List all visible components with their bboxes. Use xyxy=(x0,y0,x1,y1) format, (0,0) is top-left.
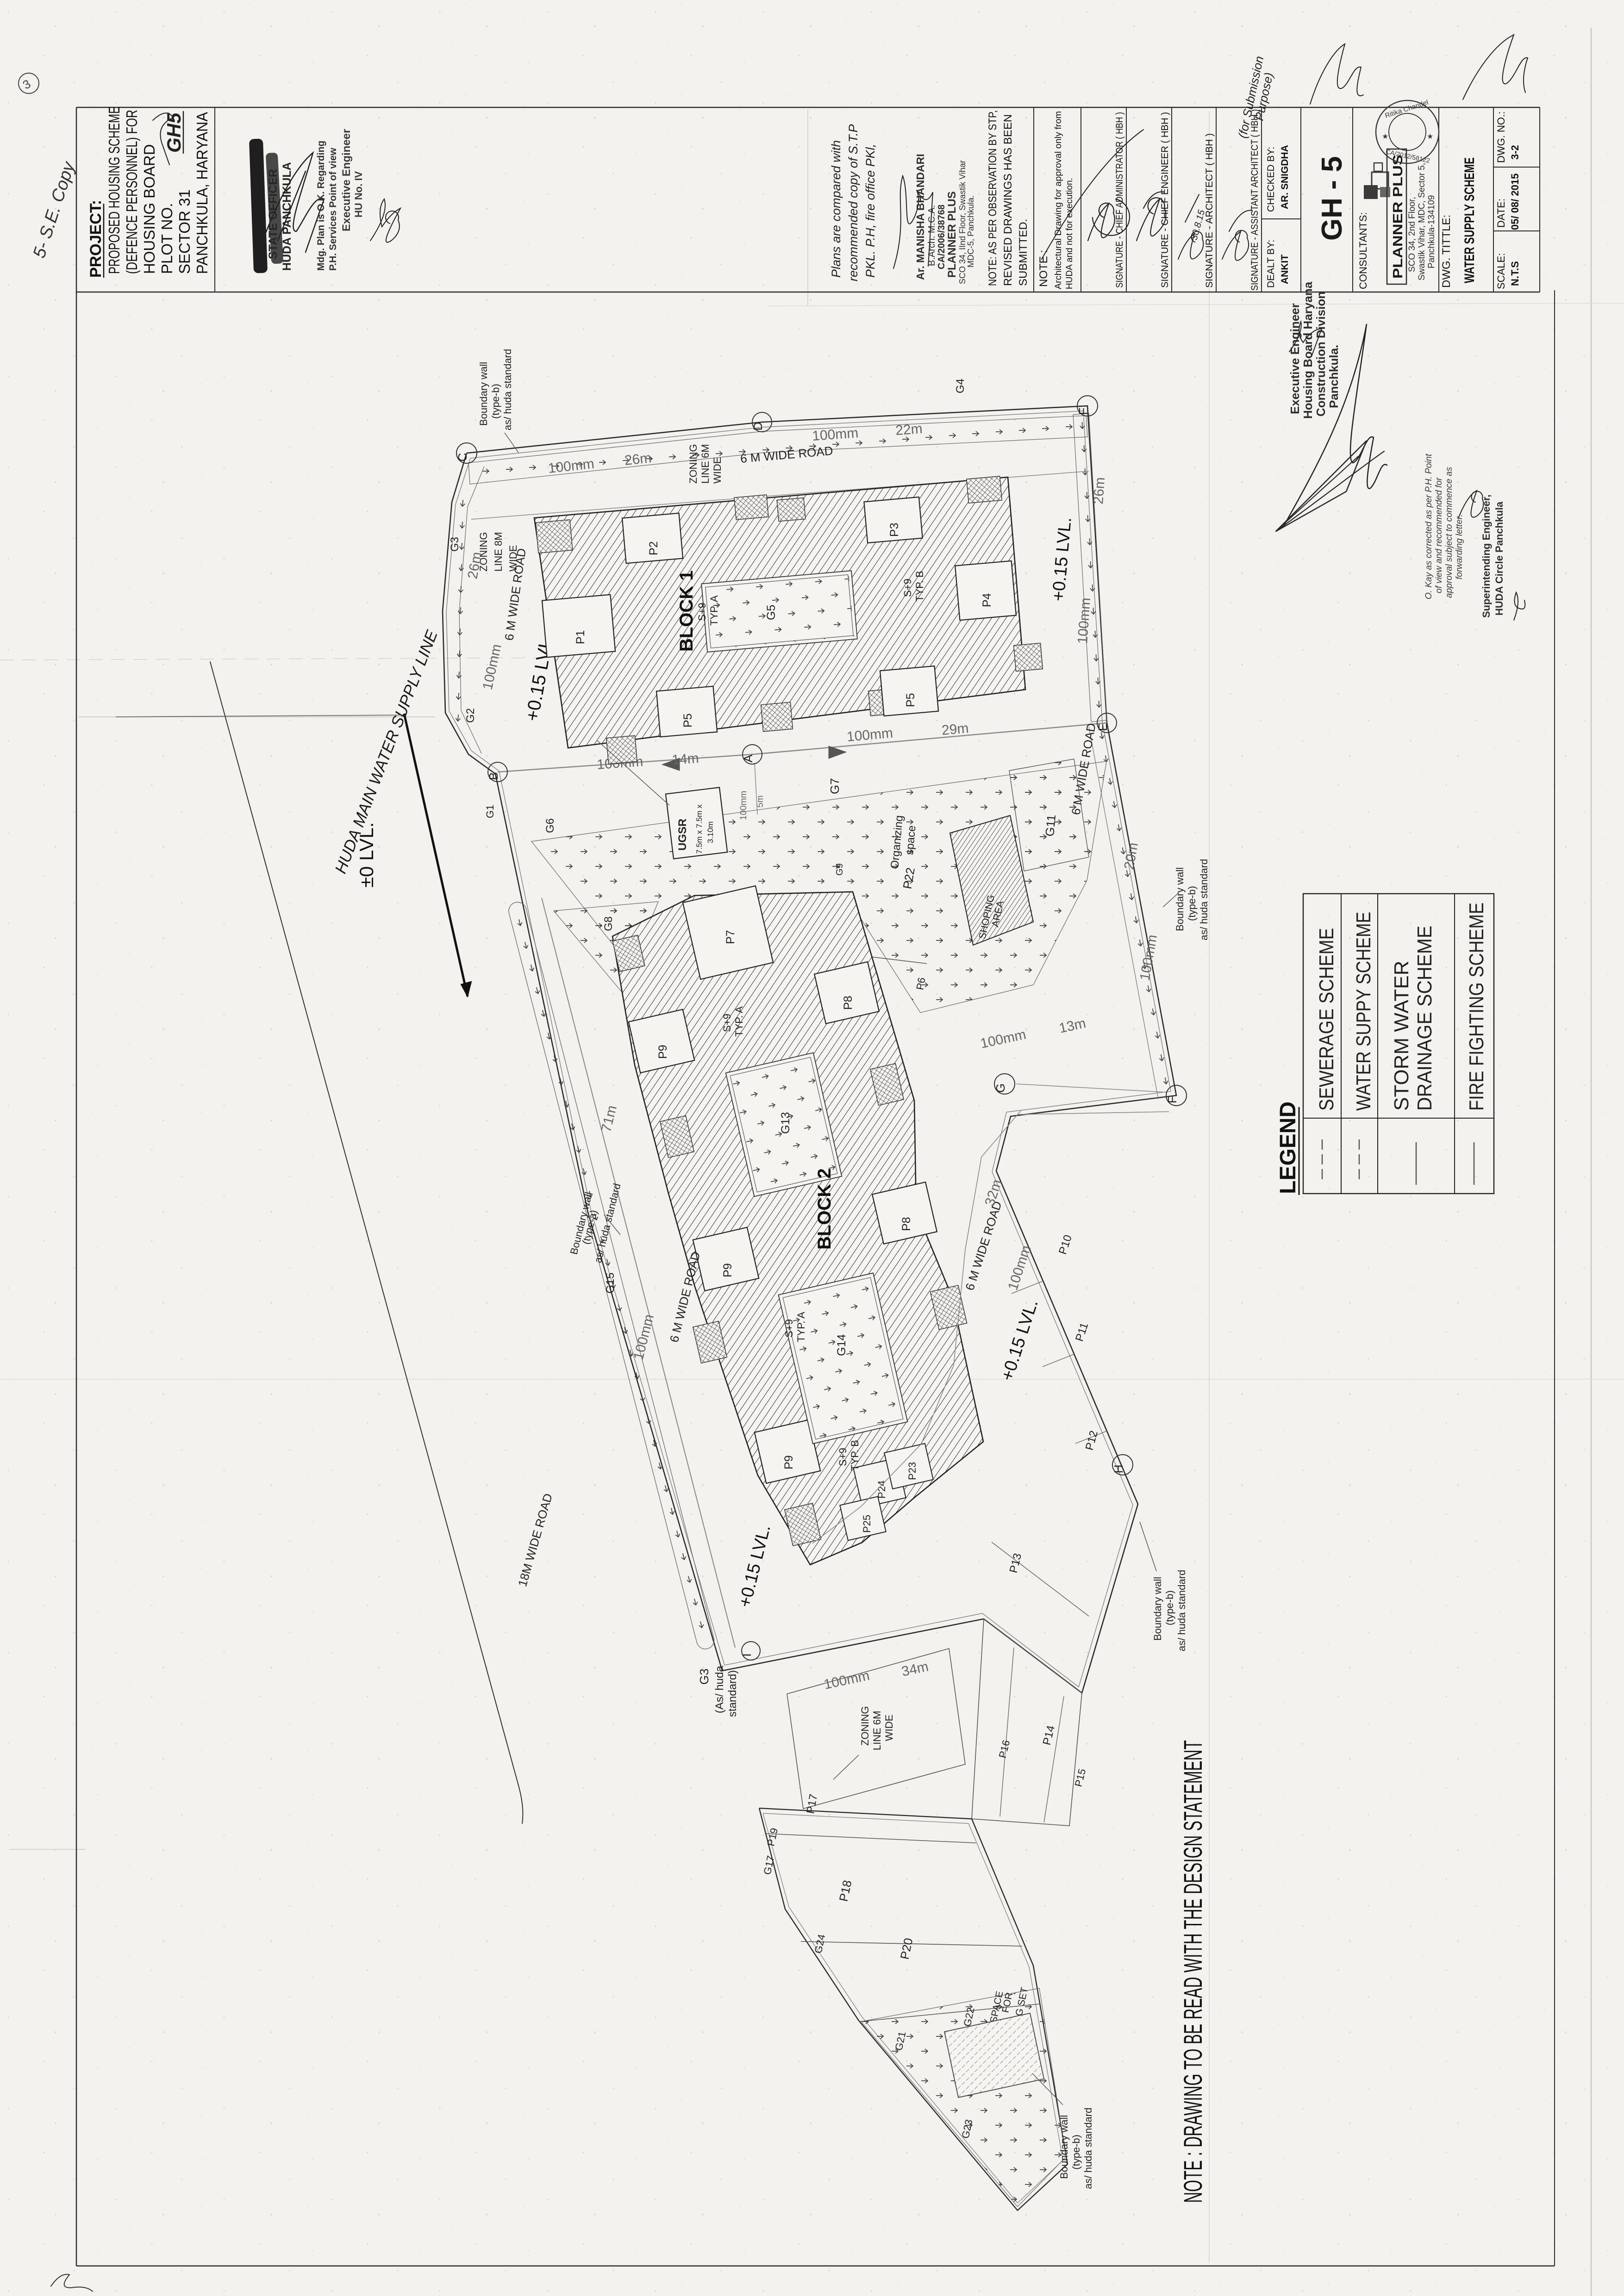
svg-text:S+9: S+9 xyxy=(696,603,708,621)
svg-text:LINE 6M: LINE 6M xyxy=(871,1711,883,1750)
svg-text:LINE 8M: LINE 8M xyxy=(493,532,504,572)
svg-text:P8: P8 xyxy=(842,996,855,1010)
svg-text:PKL. P.H, fire office PKl,: PKL. P.H, fire office PKl, xyxy=(863,144,877,278)
svg-text:CHECKED BY:: CHECKED BY: xyxy=(1266,147,1276,212)
svg-text:forwarding letter.: forwarding letter. xyxy=(1455,514,1464,579)
svg-text:F': F' xyxy=(1076,405,1090,415)
svg-text:(DEFENCE PERSONNEL) FOR: (DEFENCE PERSONNEL) FOR xyxy=(123,110,140,274)
svg-text:P1: P1 xyxy=(574,630,587,644)
svg-text:22m: 22m xyxy=(895,421,923,438)
svg-text:standard): standard) xyxy=(726,1670,739,1717)
svg-text:approval subject to commence a: approval subject to commence as xyxy=(1444,467,1454,598)
svg-text:P9: P9 xyxy=(721,1263,734,1277)
svg-text:Boundary wall: Boundary wall xyxy=(1058,2115,1070,2179)
svg-text:P25: P25 xyxy=(861,1515,873,1533)
svg-text:ZONING: ZONING xyxy=(478,532,489,572)
svg-text:D: D xyxy=(751,422,765,431)
svg-text:DRAINAGE SCHEME: DRAINAGE SCHEME xyxy=(1413,926,1436,1111)
svg-text:P.H. Services Point of view: P.H. Services Point of view xyxy=(328,148,338,271)
svg-text:G4: G4 xyxy=(954,379,967,393)
svg-text:ZONING: ZONING xyxy=(687,444,699,484)
svg-text:G2: G2 xyxy=(464,708,477,723)
svg-text:NOTE : DRAWING TO BE READ WITH: NOTE : DRAWING TO BE READ WITH THE DESIG… xyxy=(1178,1740,1207,2203)
svg-text:ANKIT: ANKIT xyxy=(1280,255,1290,284)
svg-text:★: ★ xyxy=(1427,133,1433,141)
svg-text:Executive Engineer: Executive Engineer xyxy=(1288,303,1302,414)
svg-text:N.T.S: N.T.S xyxy=(1509,261,1521,286)
svg-text:Superintending Engineer,: Superintending Engineer, xyxy=(1480,495,1492,618)
svg-text:E: E xyxy=(1096,723,1110,731)
svg-text:REVISED DRAWINGS HAS BEEN: REVISED DRAWINGS HAS BEEN xyxy=(1002,114,1014,286)
svg-text:G7: G7 xyxy=(828,778,842,794)
svg-text:Mdg. Plan is O.K. Regarding: Mdg. Plan is O.K. Regarding xyxy=(316,141,326,271)
svg-text:(type-b): (type-b) xyxy=(490,384,501,419)
svg-text:(type-b): (type-b) xyxy=(1070,2134,1082,2170)
svg-text:LINE 6M: LINE 6M xyxy=(700,444,711,484)
svg-text:SUBMITTED.: SUBMITTED. xyxy=(1017,219,1030,286)
svg-text:of view and recommended for: of view and recommended for xyxy=(1434,477,1444,593)
svg-text:G15: G15 xyxy=(604,1273,617,1294)
svg-text:G6: G6 xyxy=(544,818,556,833)
svg-text:TYP. A: TYP. A xyxy=(733,1006,745,1037)
svg-text:CA/2006/38768: CA/2006/38768 xyxy=(937,205,947,269)
svg-text:GH5: GH5 xyxy=(163,112,185,153)
svg-text:AR. SNIGDHA: AR. SNIGDHA xyxy=(1280,145,1290,209)
svg-text:O. Kay as corrected as per P.H: O. Kay as corrected as per P.H. Point xyxy=(1424,454,1434,599)
svg-text:HUDA Circle Panchkula: HUDA Circle Panchkula xyxy=(1493,501,1505,616)
svg-text:(type-b): (type-b) xyxy=(1164,1590,1175,1625)
svg-text:SIGNATURE - ASSISTANT ARCHITEC: SIGNATURE - ASSISTANT ARCHITECT ( HBH ) xyxy=(1249,109,1260,291)
svg-text:S+9: S+9 xyxy=(837,1448,849,1466)
svg-text:PLOT NO.: PLOT NO. xyxy=(158,203,175,274)
svg-text:TYP. B: TYP. B xyxy=(914,571,925,602)
svg-text:DWG. TITTLE:: DWG. TITTLE: xyxy=(1440,215,1453,288)
svg-text:Construction Division: Construction Division xyxy=(1314,292,1328,417)
svg-text:DWG. NO.:: DWG. NO.: xyxy=(1495,112,1507,163)
svg-text:★: ★ xyxy=(1382,133,1388,141)
svg-text:MDC-5, Panchkula.: MDC-5, Panchkula. xyxy=(966,195,975,268)
svg-text:14m: 14m xyxy=(671,751,700,768)
svg-text:as/ huda standard: as/ huda standard xyxy=(1176,1570,1187,1651)
svg-text:recommended copy of S.T.P: recommended copy of S.T.P xyxy=(846,124,860,281)
svg-text:Swastik Vihar, MDC, Sector 5,: Swastik Vihar, MDC, Sector 5, xyxy=(1417,163,1427,280)
svg-text:C: C xyxy=(456,453,469,462)
svg-text:G1: G1 xyxy=(484,805,496,818)
svg-text:LEGEND: LEGEND xyxy=(1276,1101,1300,1194)
svg-text:SIGNATURE - CHIEF ENGINEER ( H: SIGNATURE - CHIEF ENGINEER ( HBH ) xyxy=(1160,112,1170,288)
svg-text:S+9: S+9 xyxy=(902,579,913,597)
svg-text:PROJECT:: PROJECT: xyxy=(87,200,105,278)
svg-text:UGSR: UGSR xyxy=(676,819,689,851)
svg-text:BLOCK 2: BLOCK 2 xyxy=(814,1168,835,1250)
svg-text:PLANNER PLUS: PLANNER PLUS xyxy=(1391,155,1405,279)
svg-text:SIGNATURE - ARCHITECT ( HBH ): SIGNATURE - ARCHITECT ( HBH ) xyxy=(1204,133,1215,288)
svg-text:P6: P6 xyxy=(914,977,927,991)
svg-text:P8: P8 xyxy=(900,1217,913,1231)
svg-text:B: B xyxy=(487,772,500,780)
svg-text:FIRE FIGHTING SCHEME: FIRE FIGHTING SCHEME xyxy=(1465,902,1488,1111)
svg-text:NOTE: AS PER OBSERVATION BY ST: NOTE: AS PER OBSERVATION BY STP, xyxy=(987,110,999,286)
svg-text:TYP. A: TYP. A xyxy=(795,1312,807,1342)
svg-text:Plans are compared with: Plans are compared with xyxy=(829,140,843,278)
svg-text:TYP. A: TYP. A xyxy=(708,595,720,626)
svg-text:3.10m: 3.10m xyxy=(706,821,715,843)
svg-text:S+9: S+9 xyxy=(783,1319,795,1338)
svg-text:SCO 34, 2nd Floor,: SCO 34, 2nd Floor, xyxy=(1407,197,1417,272)
svg-text:as/ huda standard: as/ huda standard xyxy=(502,349,513,430)
svg-text:SCALE:: SCALE: xyxy=(1495,253,1507,289)
svg-text:WIDE: WIDE xyxy=(712,457,723,484)
svg-text:P5: P5 xyxy=(681,713,694,728)
svg-text:26m: 26m xyxy=(624,450,652,468)
svg-text:29m: 29m xyxy=(941,721,969,738)
svg-text:G3: G3 xyxy=(449,537,461,552)
svg-text:GH - 5: GH - 5 xyxy=(1316,156,1348,241)
svg-text:Boundary wall: Boundary wall xyxy=(1152,1577,1163,1641)
svg-text:±0 LVL.: ±0 LVL. xyxy=(356,822,377,888)
svg-text:P9: P9 xyxy=(656,1045,669,1059)
svg-text:P4: P4 xyxy=(981,593,993,607)
svg-text:ZONING: ZONING xyxy=(859,1706,871,1746)
svg-text:SEWERAGE SCHEME: SEWERAGE SCHEME xyxy=(1315,928,1338,1111)
svg-text:B.Arch. M.C.A.: B.Arch. M.C.A. xyxy=(927,205,937,266)
svg-text:S+9: S+9 xyxy=(721,1014,733,1032)
svg-text:P23: P23 xyxy=(906,1462,918,1480)
svg-text:Panchkula.: Panchkula. xyxy=(1327,345,1341,408)
svg-text:Boundary wall: Boundary wall xyxy=(478,362,489,426)
svg-text:100mm: 100mm xyxy=(1075,597,1093,644)
svg-text:TYP. B: TYP. B xyxy=(849,1440,861,1471)
svg-text:HOUSING BOARD: HOUSING BOARD xyxy=(141,144,158,274)
svg-text:26m: 26m xyxy=(1091,477,1108,505)
svg-text:G: G xyxy=(993,1083,1007,1093)
svg-text:05/ 08/ 2015: 05/ 08/ 2015 xyxy=(1509,174,1521,230)
svg-text:SECTOR 31: SECTOR 31 xyxy=(176,189,193,274)
svg-text:P3: P3 xyxy=(888,523,901,537)
svg-text:WATER SUPPLY SCHEME: WATER SUPPLY SCHEME xyxy=(1462,157,1477,283)
svg-text:G3: G3 xyxy=(697,1668,711,1685)
svg-text:(type-b): (type-b) xyxy=(1186,886,1198,921)
svg-text:G9: G9 xyxy=(835,863,845,876)
svg-text:CONSULTANTS:: CONSULTANTS: xyxy=(1357,212,1369,289)
svg-text:Housing Board Haryana: Housing Board Haryana xyxy=(1301,281,1315,419)
svg-text:100mm: 100mm xyxy=(812,425,859,444)
svg-text:space: space xyxy=(903,825,918,855)
svg-text:G14: G14 xyxy=(835,1334,848,1356)
svg-text:Boundary wall: Boundary wall xyxy=(1174,867,1186,931)
svg-text:Executive Engineer: Executive Engineer xyxy=(340,129,353,231)
svg-text:as/ huda standard: as/ huda standard xyxy=(1198,859,1210,940)
svg-text:I: I xyxy=(740,1653,754,1656)
svg-text:H: H xyxy=(1112,1465,1125,1474)
svg-text:DATE:: DATE: xyxy=(1495,199,1507,228)
svg-text:P5: P5 xyxy=(904,693,917,707)
svg-text:P9: P9 xyxy=(782,1455,795,1469)
svg-text:G11: G11 xyxy=(1043,814,1058,837)
svg-text:(As/ huda: (As/ huda xyxy=(713,1666,726,1713)
svg-text:7.5m x 7.5m x: 7.5m x 7.5m x xyxy=(695,804,704,854)
svg-text:G13: G13 xyxy=(779,1112,792,1134)
svg-text:SCO 34, IInd Floor, Swastik Vi: SCO 34, IInd Floor, Swastik Vihar xyxy=(958,160,967,284)
svg-text:Ar. MANISHA BHANDARI: Ar. MANISHA BHANDARI xyxy=(914,154,926,280)
svg-text:HUDA and not for execution.: HUDA and not for execution. xyxy=(1065,178,1074,289)
svg-text:Panchkula-134109: Panchkula-134109 xyxy=(1427,195,1437,268)
svg-text:PANCHKULA, HARYANA: PANCHKULA, HARYANA xyxy=(194,112,211,274)
svg-text:G5: G5 xyxy=(765,605,778,620)
svg-text:3-2: 3-2 xyxy=(1509,145,1521,160)
svg-text:as/ huda standard: as/ huda standard xyxy=(1082,2108,1094,2189)
svg-text:Architectural Drawing for appr: Architectural Drawing for approval only … xyxy=(1054,111,1063,289)
svg-text:SIGNATURE - CHIEF ADMINISTRATO: SIGNATURE - CHIEF ADMINISTRATOR ( HBH ) xyxy=(1114,112,1125,288)
svg-text:WATER SUPPY SCHEME: WATER SUPPY SCHEME xyxy=(1352,912,1375,1111)
svg-text:P7: P7 xyxy=(724,930,737,944)
svg-text:A: A xyxy=(741,754,755,763)
svg-text:STORM WATER: STORM WATER xyxy=(1390,961,1413,1111)
svg-text:HU No. IV: HU No. IV xyxy=(353,171,364,218)
svg-text:DEALT BY:: DEALT BY: xyxy=(1266,240,1276,288)
svg-text:BLOCK 1: BLOCK 1 xyxy=(676,570,697,652)
svg-text:WIDE: WIDE xyxy=(883,1715,895,1741)
svg-text:F: F xyxy=(1165,1096,1179,1103)
svg-text:PROPOSED HOUSING SCHEME: PROPOSED HOUSING SCHEME xyxy=(106,106,123,274)
svg-text:PLANNER PLUS: PLANNER PLUS xyxy=(946,191,958,278)
svg-text:P2: P2 xyxy=(647,541,660,555)
